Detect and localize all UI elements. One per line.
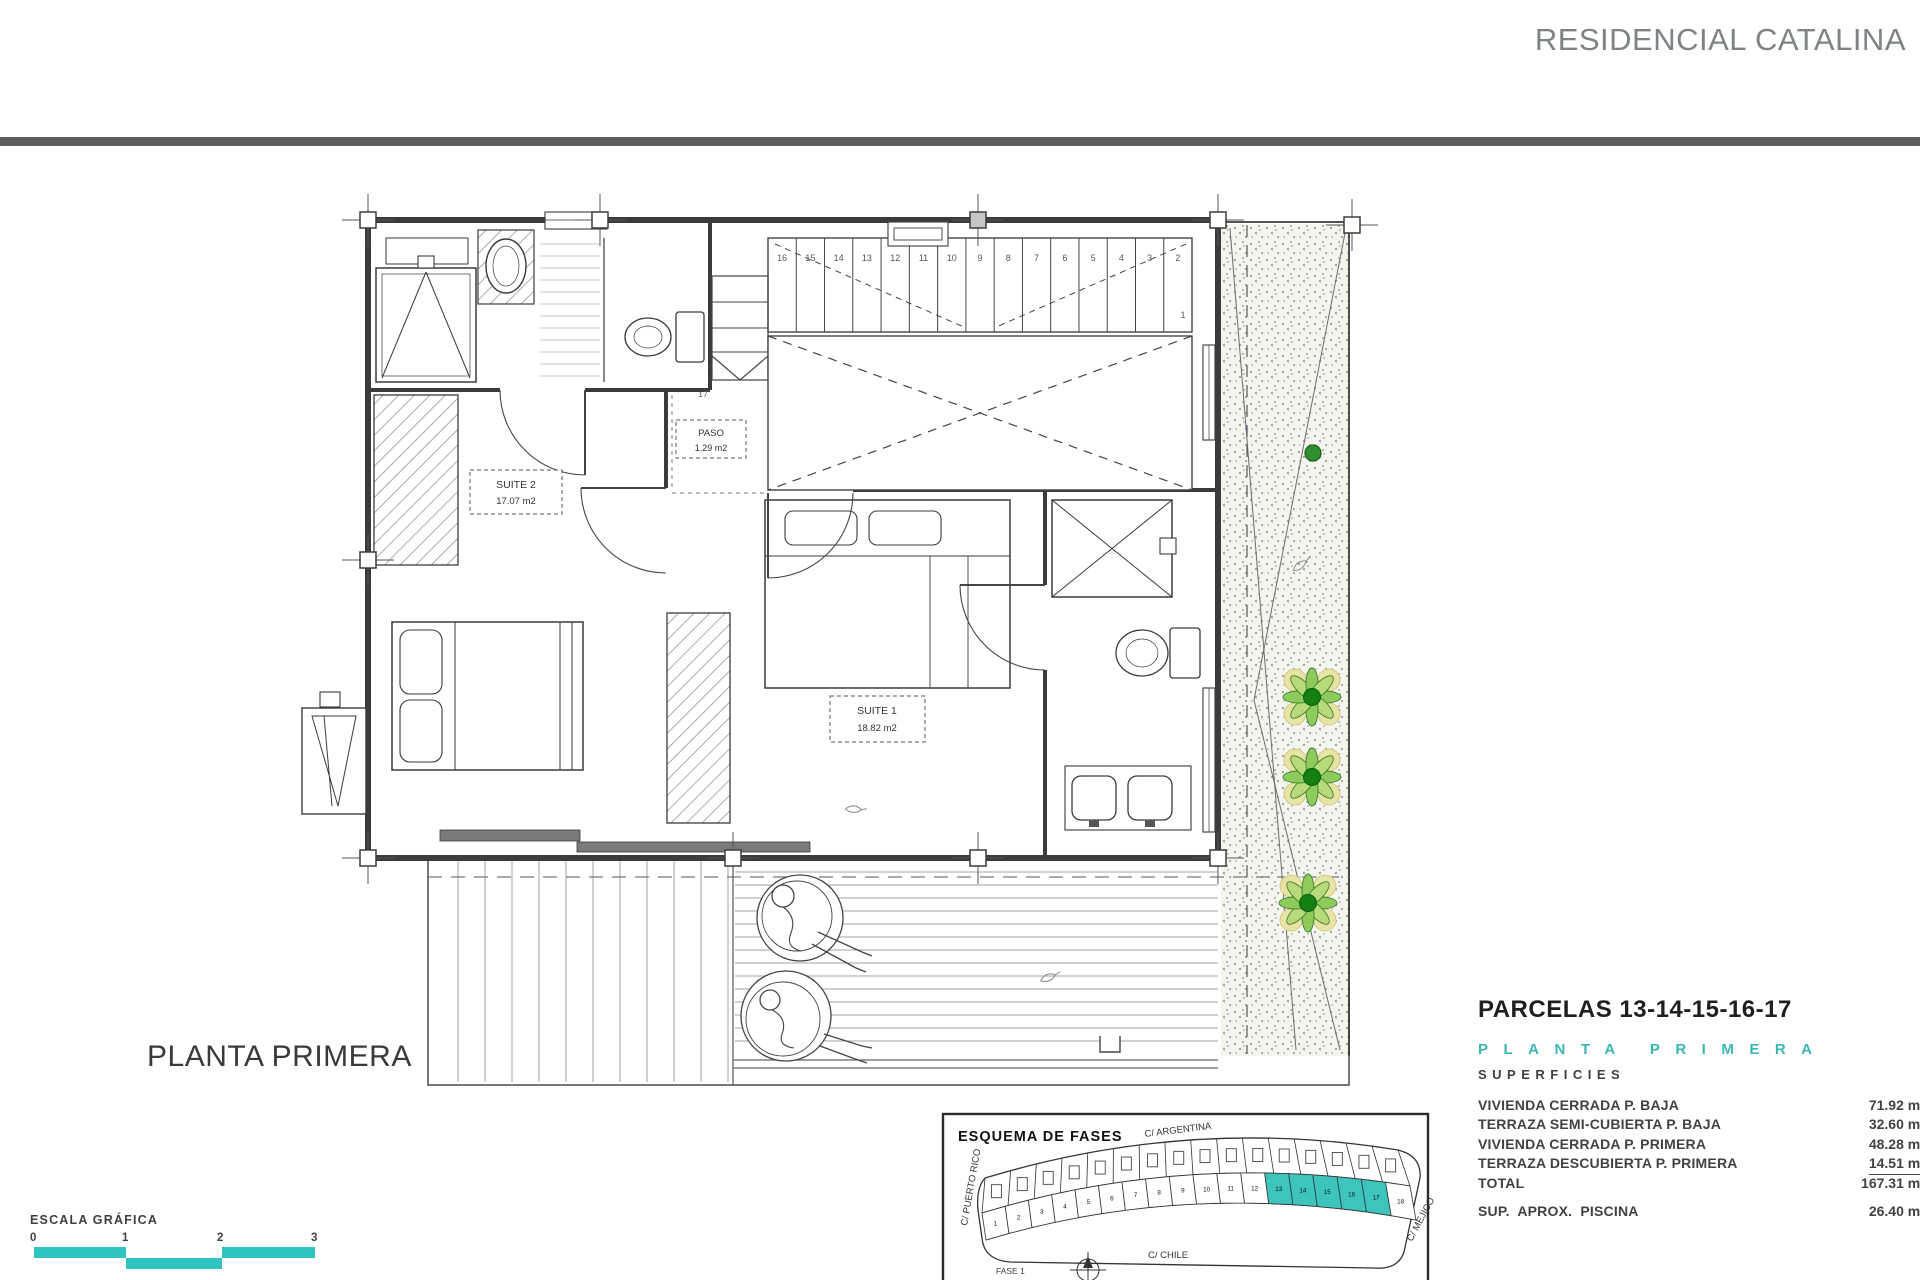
parcel-number: 16 [1348,1192,1356,1199]
parcel-number: 9 [1181,1188,1185,1195]
house-glyph [1148,1154,1158,1167]
house-glyph [1017,1178,1027,1191]
stair-number-first: 1 [1180,310,1185,320]
suite2-furniture [374,395,583,770]
stair-number: 14 [834,253,844,263]
parcel-number: 13 [1275,1186,1283,1193]
inset-title: ESQUEMA DE FASES [958,1129,1123,1145]
parcel-number: 1 [994,1221,998,1228]
stair-number: 16 [777,253,787,263]
house-glyph [1332,1152,1342,1165]
stair-number: 3 [1147,253,1152,263]
parcel-number: 15 [1324,1189,1332,1196]
parcel-number: 10 [1203,1186,1211,1193]
toilet [676,312,704,362]
bathroom-2 [1052,500,1200,830]
house-glyph [1043,1171,1053,1184]
stair-number: 11 [919,253,928,263]
pool-step [1100,1036,1120,1052]
sink [1128,776,1172,820]
house-glyph [1253,1148,1263,1161]
staircase: 1615141312111098765432 [712,238,1192,490]
stair-number: 10 [947,253,957,263]
plant-icon [1283,668,1341,726]
parcel-number: 6 [1110,1195,1114,1202]
column-marker [1344,217,1360,233]
plant-icon [1279,874,1337,932]
plant-icon [1283,748,1341,806]
wardrobe [374,395,458,565]
phase-scheme-inset: 123456789101112131415161718 ESQUEMA DE F… [943,1114,1437,1280]
house-glyph [1359,1155,1369,1168]
room-name: SUITE 1 [857,705,897,717]
sink [486,239,526,293]
stair-number: 5 [1091,253,1096,263]
wardrobe [667,613,730,823]
bed [765,500,1010,688]
sink [1072,776,1116,820]
house-glyph [1095,1161,1105,1174]
house-glyph [1174,1151,1184,1164]
house-glyph [991,1185,1001,1198]
shrub [1305,445,1321,461]
column-marker [360,552,376,568]
suite1-furniture [667,500,1010,823]
house-glyph [1279,1149,1289,1162]
leaf-icon [845,804,867,814]
house-glyph [1121,1157,1131,1170]
floor-plan-drawing: 1615141312111098765432 SUITE 2 17.07 m2 … [0,0,1920,1280]
column-marker [970,850,986,866]
house-glyph [1386,1159,1396,1172]
parcel-number: 11 [1227,1186,1234,1193]
column-marker [970,212,986,228]
toilet [1170,628,1200,678]
parcel-number: 14 [1299,1187,1307,1194]
parcel-number: 5 [1087,1199,1091,1206]
parcel-number: 4 [1063,1204,1067,1211]
house-glyph [1306,1150,1316,1163]
column-marker [360,212,376,228]
outdoor-shower [302,692,366,814]
stair-number: 12 [890,253,900,263]
column-marker [1210,212,1226,228]
parcel-number: 2 [1017,1214,1021,1221]
parcel-number: 3 [1040,1209,1044,1216]
stair-number: 13 [862,253,872,263]
shower [376,268,476,382]
parcel-number: 8 [1157,1190,1161,1197]
stair-number: 8 [1006,253,1011,263]
garden-strip [1218,222,1349,1056]
bathroom-floor-tiles [540,244,600,376]
house-glyph [1200,1150,1210,1163]
stair-number: 2 [1175,253,1180,263]
sliding-doors [440,830,810,852]
room-area: 1.29 m2 [695,443,728,453]
house-glyph [1069,1166,1079,1179]
stair-number-upper: 17 [698,389,708,399]
lot-division [1139,1145,1140,1180]
column-marker [360,850,376,866]
column-marker [592,212,608,228]
terrace [428,858,1349,1085]
house-glyph [1226,1149,1236,1162]
street-label: C/ CHILE [1148,1250,1188,1261]
room-name: PASO [698,428,724,439]
stair-number: 4 [1119,253,1124,263]
room-name: SUITE 2 [496,479,536,491]
bed [392,622,583,770]
room-area: 18.82 m2 [857,723,897,734]
phase-label: FASE 1 [996,1266,1025,1276]
bathroom-1 [376,230,704,382]
stair-direction-arrow [712,356,768,380]
parcel-number: 12 [1251,1186,1259,1193]
parcel-number: 18 [1397,1198,1405,1205]
stair-number: 6 [1062,253,1067,263]
parcel-number: 17 [1373,1195,1381,1202]
stair-number: 7 [1034,253,1039,263]
stair-number: 9 [978,253,983,263]
column-marker [1210,850,1226,866]
column-marker [725,850,741,866]
parcel-number: 7 [1134,1192,1138,1199]
room-area: 17.07 m2 [496,496,536,507]
